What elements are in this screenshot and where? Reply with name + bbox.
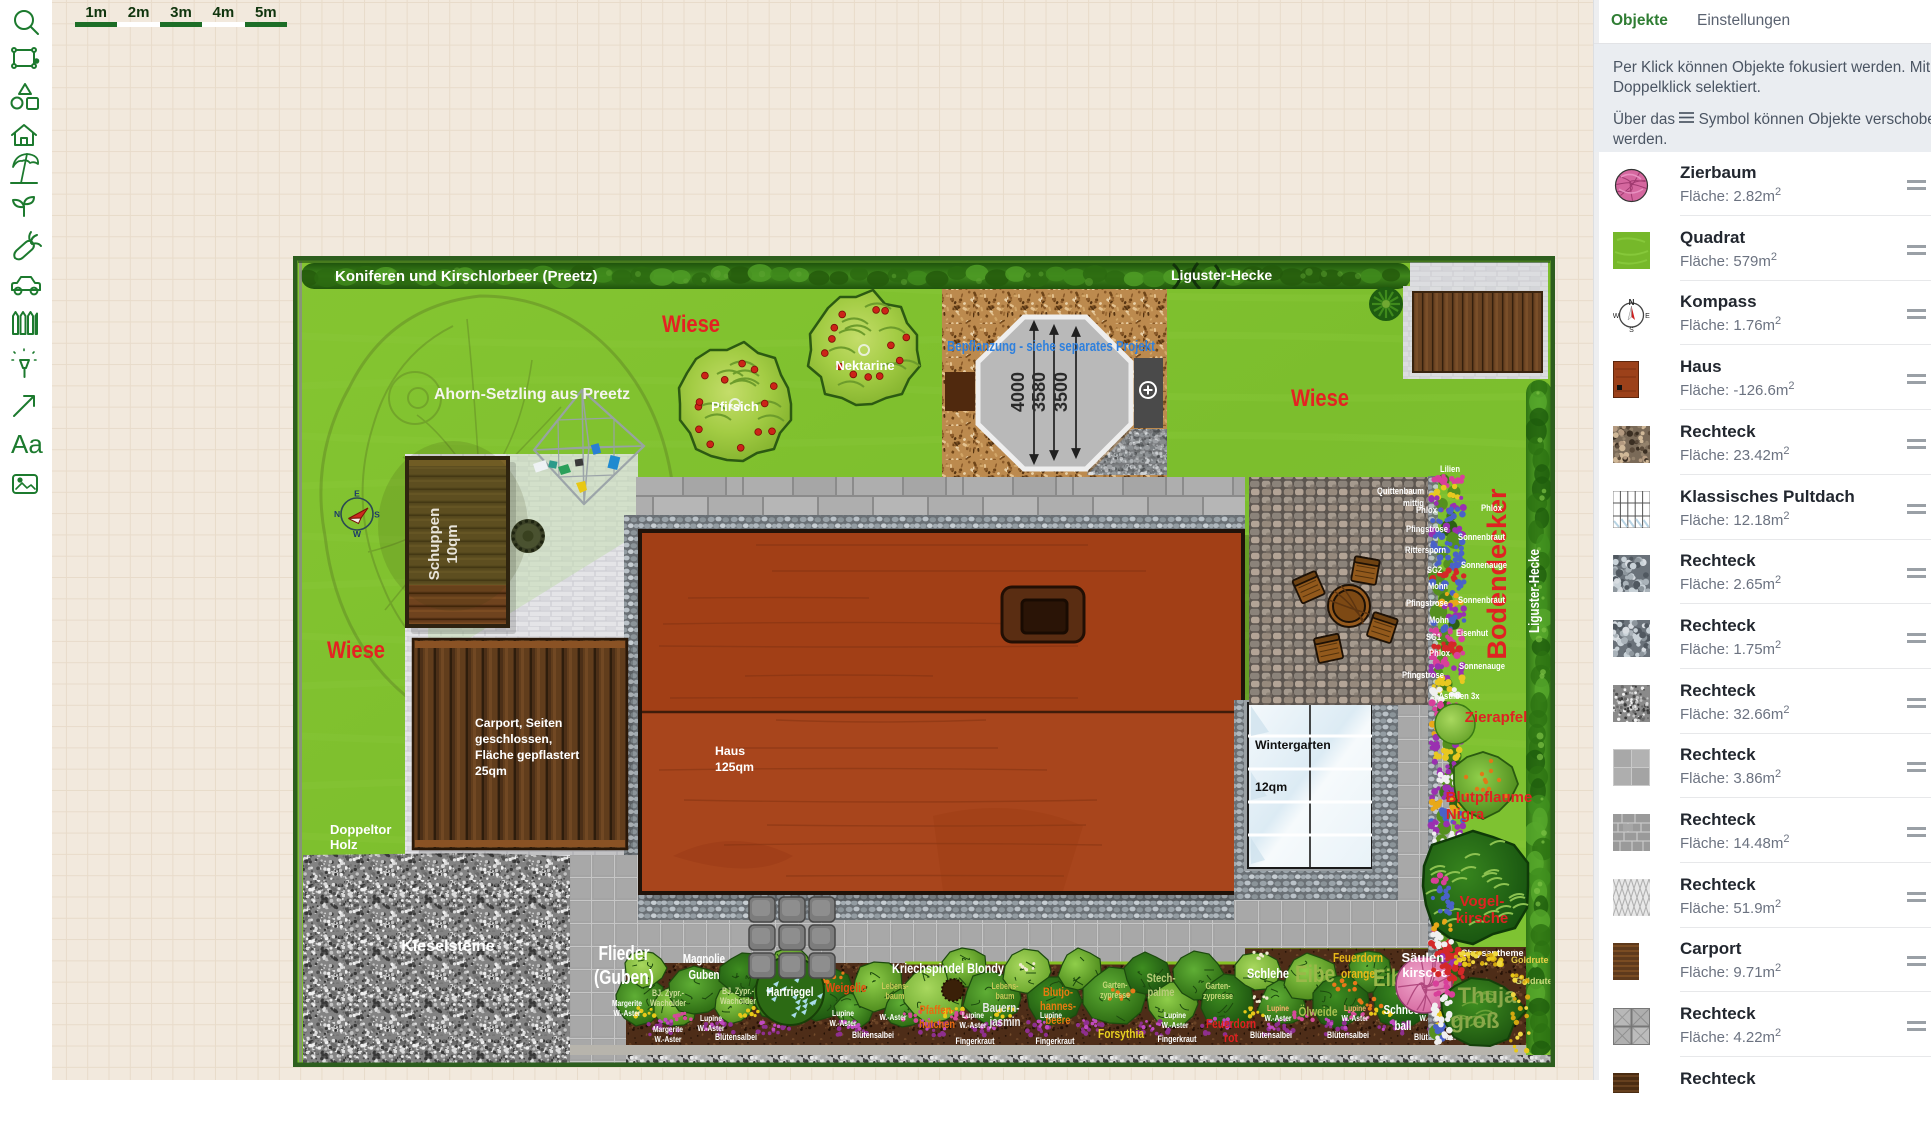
svg-text:Nigra: Nigra bbox=[1446, 806, 1485, 823]
svg-text:Weigelie: Weigelie bbox=[826, 980, 867, 995]
svg-text:Doppeltor: Doppeltor bbox=[330, 822, 391, 837]
svg-text:Blütensalbei: Blütensalbei bbox=[1327, 1030, 1369, 1040]
svg-text:Sonnenauge: Sonnenauge bbox=[1461, 560, 1507, 570]
svg-text:Bepflanzung - siehe separates: Bepflanzung - siehe separates Projekt bbox=[947, 339, 1155, 355]
svg-text:Eisenhut: Eisenhut bbox=[1456, 628, 1488, 638]
svg-text:Lupine: Lupine bbox=[1164, 1010, 1186, 1020]
svg-text:BJ. Zypr.-: BJ. Zypr.- bbox=[652, 988, 684, 998]
svg-text:Blütensalbei: Blütensalbei bbox=[1250, 1030, 1292, 1040]
svg-text:Lupine: Lupine bbox=[1344, 1003, 1366, 1013]
svg-text:Lebens-: Lebens- bbox=[882, 981, 909, 991]
svg-text:Fingerkraut: Fingerkraut bbox=[1158, 1034, 1197, 1044]
svg-text:Pfingstrose: Pfingstrose bbox=[1406, 598, 1448, 608]
svg-text:Quittenbaum: Quittenbaum bbox=[1377, 486, 1424, 496]
svg-text:Ölweide: Ölweide bbox=[1299, 1004, 1338, 1019]
svg-text:Fingerkraut: Fingerkraut bbox=[956, 1036, 995, 1046]
svg-text:geschlossen,: geschlossen, bbox=[475, 732, 552, 746]
svg-text:jasmin: jasmin bbox=[989, 1015, 1021, 1029]
svg-text:Lupine: Lupine bbox=[832, 1008, 854, 1018]
svg-text:Phlox: Phlox bbox=[1416, 505, 1438, 515]
svg-text:W.-Aster: W.-Aster bbox=[830, 1018, 858, 1028]
svg-text:Sonnenbraut: Sonnenbraut bbox=[1458, 532, 1505, 542]
svg-text:Blutjo-: Blutjo- bbox=[1043, 985, 1073, 999]
svg-text:Koniferen und Kirschlorbeer (P: Koniferen und Kirschlorbeer (Preetz) bbox=[335, 268, 598, 285]
svg-text:W.-Aster: W.-Aster bbox=[1265, 1013, 1293, 1023]
svg-text:S: S bbox=[374, 510, 380, 520]
svg-text:125qm: 125qm bbox=[715, 760, 754, 774]
svg-text:baum: baum bbox=[996, 991, 1015, 1001]
svg-text:25qm: 25qm bbox=[475, 764, 507, 778]
svg-text:rot: rot bbox=[1224, 1030, 1239, 1045]
svg-text:Fingerkraut: Fingerkraut bbox=[1036, 1036, 1075, 1046]
svg-text:Margerite: Margerite bbox=[612, 998, 642, 1008]
svg-text:Wacholder: Wacholder bbox=[650, 998, 686, 1008]
svg-text:baum: baum bbox=[886, 991, 905, 1001]
svg-text:W.-Aster: W.-Aster bbox=[1342, 1013, 1370, 1023]
svg-text:kirsche: kirsche bbox=[1456, 910, 1509, 927]
svg-text:Guben: Guben bbox=[689, 968, 720, 982]
svg-text:Säulen-: Säulen- bbox=[1402, 950, 1449, 965]
svg-text:3580: 3580 bbox=[1029, 372, 1049, 412]
svg-text:Garten-: Garten- bbox=[1206, 981, 1231, 991]
svg-text:W.-Aster: W.-Aster bbox=[880, 1012, 908, 1022]
svg-text:Vogel-: Vogel- bbox=[1460, 893, 1505, 910]
svg-text:Sonnenauge: Sonnenauge bbox=[1459, 661, 1505, 671]
svg-text:Liguster-Hecke: Liguster-Hecke bbox=[1527, 549, 1543, 633]
svg-text:Phlox: Phlox bbox=[1481, 503, 1503, 513]
svg-text:orange: orange bbox=[1341, 966, 1375, 981]
svg-text:zypresse: zypresse bbox=[1100, 990, 1130, 1000]
svg-text:Hartriegel: Hartriegel bbox=[767, 984, 814, 999]
svg-text:10qm: 10qm bbox=[444, 524, 461, 563]
svg-text:Pfaffen-: Pfaffen- bbox=[920, 1003, 955, 1017]
svg-text:W.-Aster: W.-Aster bbox=[614, 1008, 642, 1018]
svg-text:W.-Aster: W.-Aster bbox=[655, 1034, 683, 1044]
svg-text:Forsythia: Forsythia bbox=[1098, 1026, 1145, 1041]
svg-text:Blütensalbei: Blütensalbei bbox=[715, 1032, 757, 1042]
svg-text:Nektarine: Nektarine bbox=[835, 358, 894, 373]
svg-text:Blütensalbei: Blütensalbei bbox=[852, 1030, 894, 1040]
svg-text:Feuerdorn: Feuerdorn bbox=[1206, 1016, 1256, 1031]
svg-text:Zierapfel: Zierapfel bbox=[1465, 709, 1528, 726]
svg-text:W.-Aster: W.-Aster bbox=[1162, 1020, 1190, 1030]
svg-text:Garten-: Garten- bbox=[1103, 980, 1128, 990]
svg-text:Phlox: Phlox bbox=[1429, 648, 1451, 658]
svg-text:4000: 4000 bbox=[1008, 372, 1028, 412]
svg-text:Pfingstrose: Pfingstrose bbox=[1402, 670, 1444, 680]
svg-text:Ahorn-Setzling aus Preetz: Ahorn-Setzling aus Preetz bbox=[434, 386, 630, 403]
svg-text:SG2: SG2 bbox=[1427, 565, 1442, 575]
svg-text:E: E bbox=[1645, 313, 1650, 320]
svg-text:Aa: Aa bbox=[11, 429, 43, 459]
svg-text:SG1: SG1 bbox=[1426, 632, 1441, 642]
svg-text:zypresse: zypresse bbox=[1203, 991, 1233, 1001]
svg-text:Wintergarten: Wintergarten bbox=[1255, 738, 1331, 752]
svg-text:Feuerdorn: Feuerdorn bbox=[1333, 950, 1383, 965]
svg-text:Goldrute: Goldrute bbox=[1511, 955, 1549, 965]
svg-text:Mohn: Mohn bbox=[1429, 615, 1449, 625]
svg-text:Lupine: Lupine bbox=[962, 1010, 984, 1020]
svg-text:E: E bbox=[354, 489, 360, 499]
svg-text:Stech-: Stech- bbox=[1147, 971, 1176, 985]
svg-text:3500: 3500 bbox=[1051, 372, 1071, 412]
svg-text:Schlehe: Schlehe bbox=[1247, 965, 1289, 981]
svg-text:12qm: 12qm bbox=[1255, 780, 1287, 794]
svg-text:Liguster-Hecke: Liguster-Hecke bbox=[1171, 267, 1272, 283]
svg-text:Wacholder: Wacholder bbox=[720, 996, 756, 1006]
svg-text:Flieder: Flieder bbox=[599, 943, 650, 965]
svg-text:Lebens-: Lebens- bbox=[992, 981, 1019, 991]
svg-text:Wiese: Wiese bbox=[1291, 385, 1349, 412]
svg-text:BJ. Zypr.-: BJ. Zypr.- bbox=[722, 986, 754, 996]
svg-text:Rittersporn: Rittersporn bbox=[1405, 545, 1446, 555]
svg-text:Pfirsich: Pfirsich bbox=[711, 399, 759, 414]
svg-text:Pfingstrose: Pfingstrose bbox=[1406, 524, 1448, 534]
svg-text:S: S bbox=[1629, 327, 1634, 333]
svg-text:Kriechspindel Blondy: Kriechspindel Blondy bbox=[892, 960, 1004, 976]
svg-text:Lupine: Lupine bbox=[1040, 1010, 1062, 1020]
svg-text:W: W bbox=[1613, 313, 1620, 320]
svg-text:Blutpflaume: Blutpflaume bbox=[1446, 789, 1533, 806]
svg-text:Bauern-: Bauern- bbox=[983, 1001, 1020, 1015]
svg-text:palme: palme bbox=[1148, 985, 1175, 999]
svg-text:Thuja: Thuja bbox=[1458, 983, 1517, 1008]
svg-text:ball: ball bbox=[1395, 1018, 1412, 1033]
svg-text:Schuppen: Schuppen bbox=[426, 508, 443, 581]
svg-text:Magnolie: Magnolie bbox=[683, 952, 725, 966]
svg-text:N: N bbox=[334, 509, 340, 519]
svg-text:Mohn: Mohn bbox=[1428, 581, 1448, 591]
svg-text:Eibe: Eibe bbox=[1295, 961, 1335, 988]
svg-text:Margerite: Margerite bbox=[653, 1024, 683, 1034]
svg-text:W.-Aster: W.-Aster bbox=[960, 1020, 988, 1030]
svg-text:N: N bbox=[1629, 298, 1635, 307]
svg-text:hütchen: hütchen bbox=[919, 1017, 955, 1031]
svg-text:Carport, Seiten: Carport, Seiten bbox=[475, 716, 562, 730]
svg-text:Lilien: Lilien bbox=[1440, 464, 1460, 474]
svg-text:Wiese: Wiese bbox=[662, 311, 720, 338]
svg-text:Lupine: Lupine bbox=[700, 1013, 722, 1023]
svg-text:Lupine: Lupine bbox=[1267, 1003, 1289, 1013]
svg-text:Astilben 3x: Astilben 3x bbox=[1439, 691, 1481, 701]
svg-text:groß: groß bbox=[1451, 1008, 1500, 1033]
svg-text:Wiese: Wiese bbox=[327, 637, 385, 664]
svg-text:W: W bbox=[353, 529, 362, 539]
svg-text:(Guben): (Guben) bbox=[594, 967, 654, 989]
svg-text:Sonnenbraut: Sonnenbraut bbox=[1458, 595, 1505, 605]
svg-text:Haus: Haus bbox=[715, 744, 745, 758]
svg-text:Kieselsteine: Kieselsteine bbox=[401, 938, 494, 955]
svg-text:Fläche gepflastert: Fläche gepflastert bbox=[475, 748, 579, 762]
svg-text:Holz: Holz bbox=[330, 837, 358, 852]
